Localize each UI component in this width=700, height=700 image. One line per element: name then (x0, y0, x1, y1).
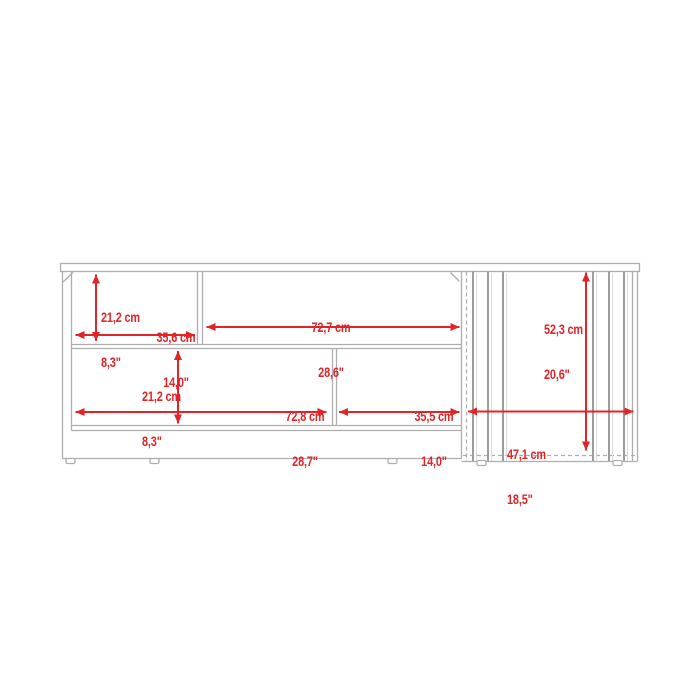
dimension-diagram: 21,2 cm 8,3" 35,6 cm 14,0" 72,7 cm 28,6"… (0, 0, 700, 700)
dim-value-cm: 72,7 cm (312, 320, 351, 335)
top-board (61, 264, 640, 272)
dim-value-cm: 35,5 cm (415, 409, 454, 424)
dim-value-in: 28,7" (286, 454, 325, 469)
dim-value-cm: 21,2 cm (142, 389, 181, 404)
dim-label-cabinet-width: 47,1 cm 18,5" (507, 417, 546, 537)
dim-value-cm: 47,1 cm (507, 447, 546, 462)
dim-label-cabinet-height: 52,3 cm 20,6" (544, 292, 583, 412)
dim-label-lower-right-shelf-width: 35,5 cm 14,0" (415, 379, 454, 499)
dim-label-lower-left-shelf-width: 72,8 cm 28,7" (286, 379, 325, 499)
dim-value-in: 20,6" (544, 367, 583, 382)
dim-value-cm: 35,6 cm (157, 330, 196, 345)
dim-value-in: 28,6" (312, 365, 351, 380)
corner-mark-right (451, 273, 460, 282)
dim-value-cm: 72,8 cm (286, 409, 325, 424)
dim-value-in: 14,0" (415, 454, 454, 469)
dim-value-in: 8,3" (142, 434, 181, 449)
dim-value-cm: 52,3 cm (544, 322, 583, 337)
dim-value-in: 8,3" (101, 355, 140, 370)
dim-label-lower-shelf-height: 21,2 cm 8,3" (142, 359, 181, 479)
dim-label-upper-shelf-height: 21,2 cm 8,3" (101, 280, 140, 400)
dim-value-cm: 21,2 cm (101, 310, 140, 325)
dim-value-in: 18,5" (507, 492, 546, 507)
